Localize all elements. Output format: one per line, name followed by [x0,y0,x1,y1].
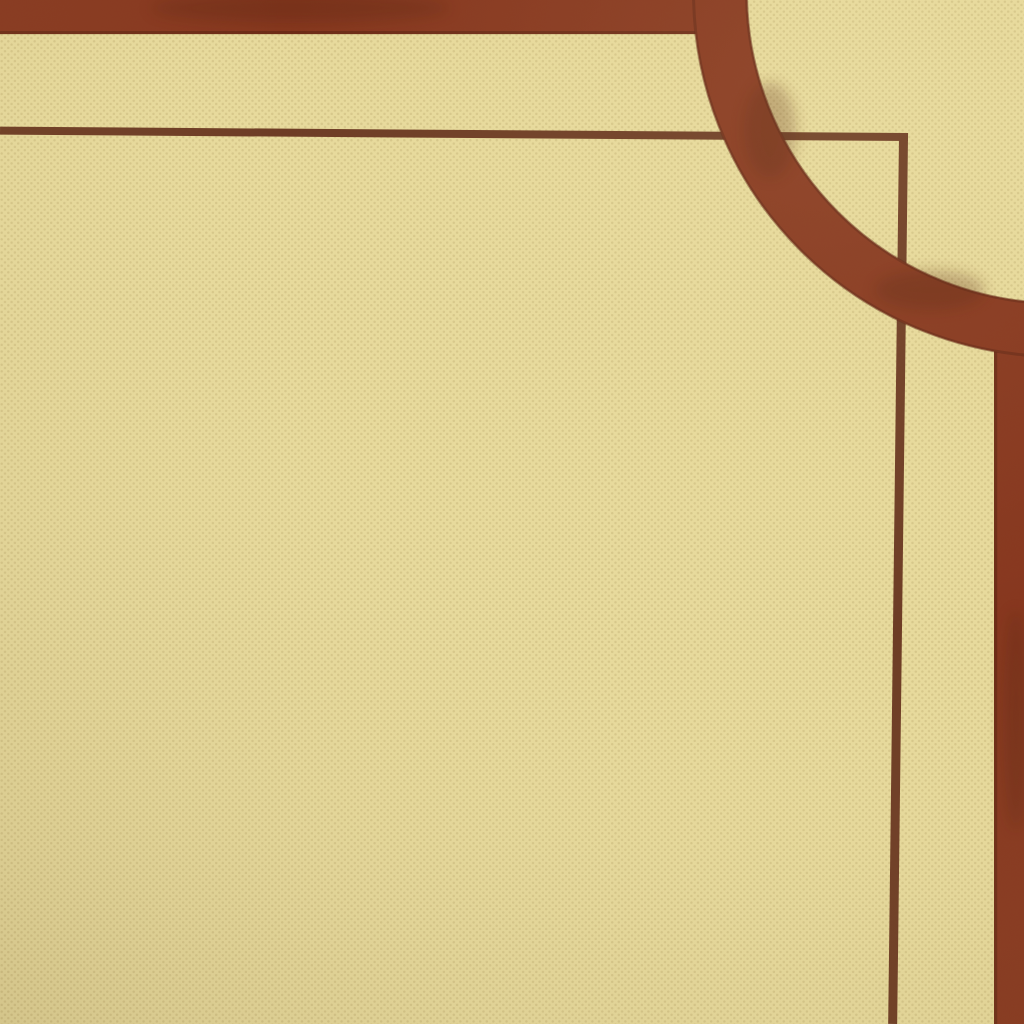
border-artwork [0,0,1024,1024]
photo-card-corner [0,0,1024,1024]
photo-vignette-overlay [0,0,1024,1024]
